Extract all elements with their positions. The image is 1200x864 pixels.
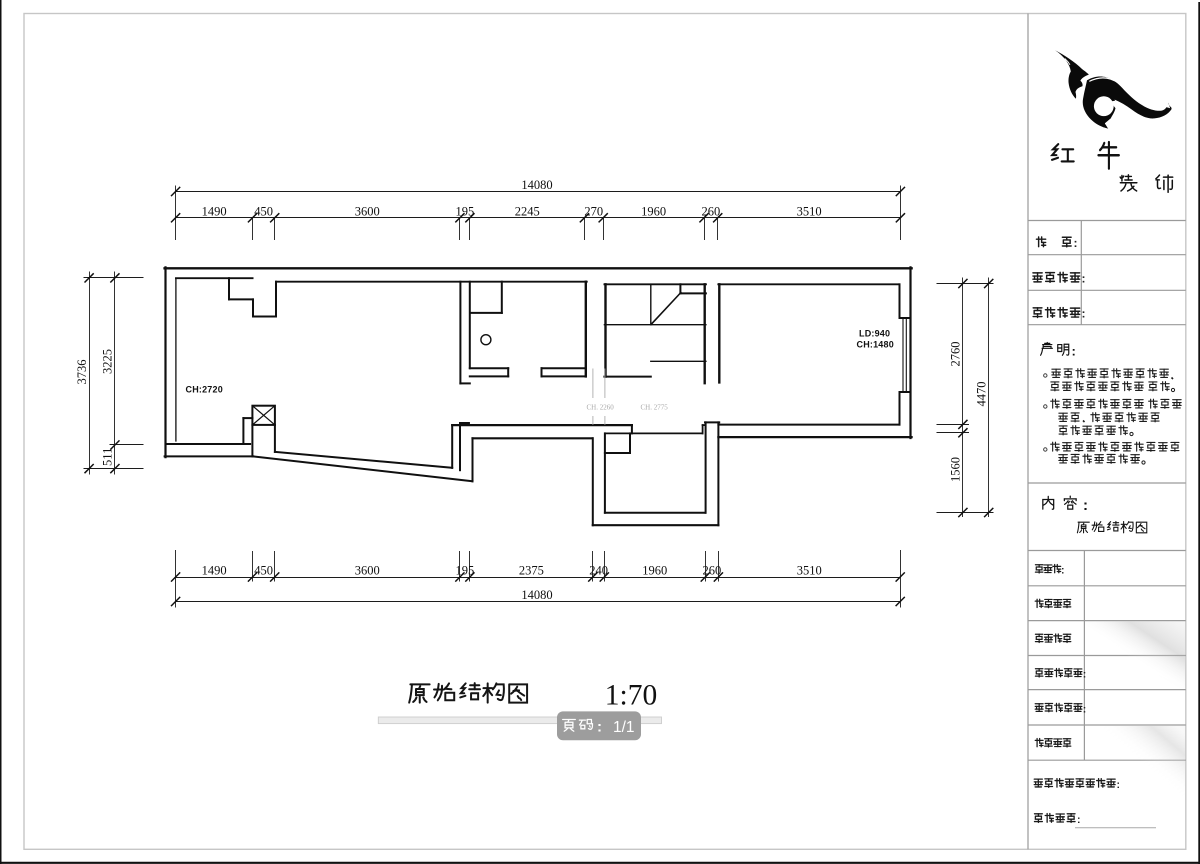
svg-text:270: 270: [584, 204, 603, 218]
svg-text::: :: [1082, 271, 1086, 285]
svg-text:14080: 14080: [521, 178, 552, 192]
svg-text:3600: 3600: [355, 204, 380, 218]
svg-text:450: 450: [254, 564, 273, 578]
svg-text:CH. 2775: CH. 2775: [641, 404, 669, 412]
svg-text:3510: 3510: [797, 564, 822, 578]
svg-text:1960: 1960: [642, 564, 667, 578]
svg-text:4470: 4470: [974, 382, 988, 407]
svg-text:CH. 2260: CH. 2260: [587, 404, 615, 412]
svg-text::: :: [1083, 703, 1087, 715]
svg-text:195: 195: [456, 564, 475, 578]
svg-text::: :: [1083, 669, 1087, 681]
svg-text::: :: [1072, 344, 1076, 359]
svg-text:450: 450: [254, 204, 273, 218]
svg-text:2245: 2245: [515, 204, 540, 218]
svg-text:2375: 2375: [519, 564, 544, 578]
svg-text::: :: [1074, 236, 1078, 250]
svg-text::: :: [1117, 779, 1121, 791]
svg-text:1/1: 1/1: [613, 719, 635, 736]
svg-text:3736: 3736: [75, 360, 89, 385]
svg-text:1:70: 1:70: [605, 680, 657, 712]
svg-text:14080: 14080: [521, 588, 552, 602]
svg-text::: :: [597, 719, 602, 736]
svg-text:260: 260: [702, 204, 721, 218]
svg-text:3225: 3225: [101, 349, 115, 374]
svg-text::: :: [1077, 814, 1081, 826]
svg-text:240: 240: [589, 564, 608, 578]
svg-text:CH:1480: CH:1480: [857, 340, 894, 350]
svg-text:1560: 1560: [949, 457, 963, 482]
svg-text:1960: 1960: [641, 204, 666, 218]
svg-text:195: 195: [456, 204, 475, 218]
svg-text::: :: [1082, 307, 1086, 321]
svg-text:3510: 3510: [797, 204, 822, 218]
svg-text:511: 511: [101, 448, 115, 466]
svg-text:1490: 1490: [202, 564, 227, 578]
svg-text:CH:2720: CH:2720: [186, 385, 223, 395]
svg-text:260: 260: [703, 564, 722, 578]
svg-text:LD:940: LD:940: [859, 329, 890, 339]
svg-text:3600: 3600: [355, 564, 380, 578]
svg-text:1490: 1490: [202, 204, 227, 218]
svg-text:2760: 2760: [949, 342, 963, 367]
svg-text::: :: [1083, 497, 1088, 514]
svg-text::: :: [1061, 565, 1065, 577]
